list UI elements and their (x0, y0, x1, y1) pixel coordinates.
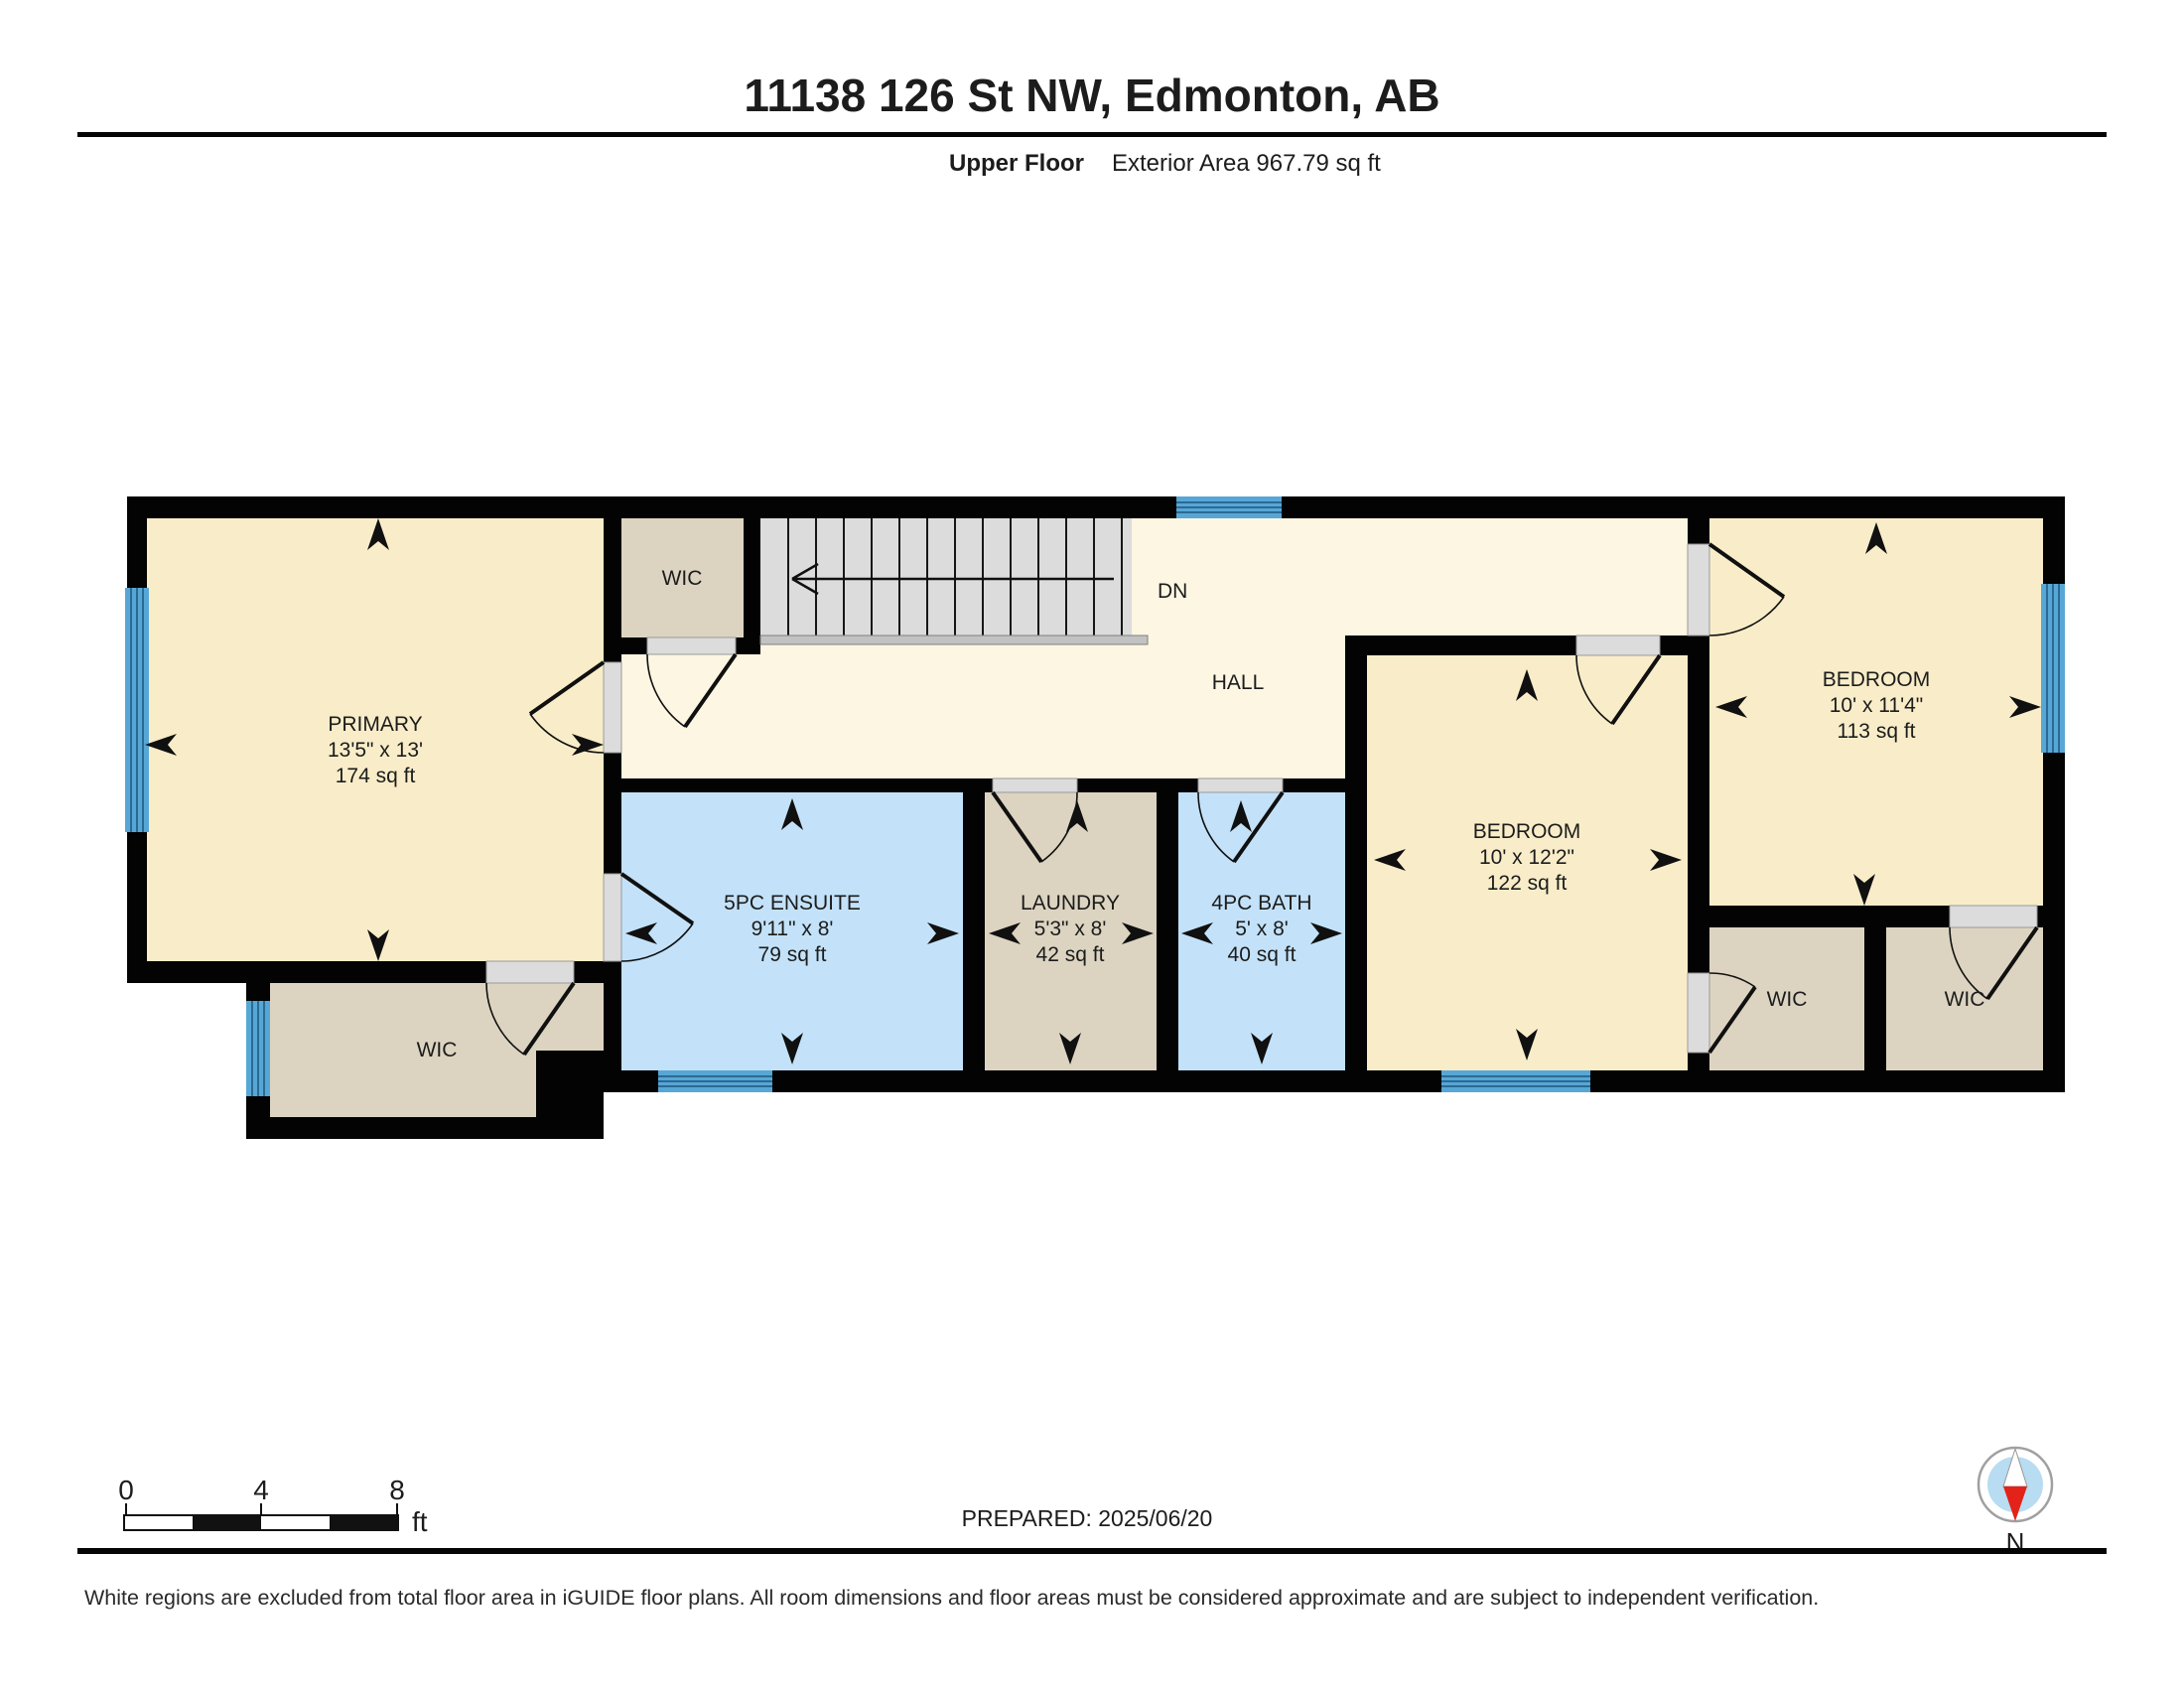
room-wic-right-b-label: WIC (1945, 988, 1985, 1011)
scale-bar-segment (330, 1515, 398, 1530)
window-wic-left (246, 1001, 270, 1096)
room-wic-top-label: WIC (662, 567, 703, 590)
window-bedroom-right (2041, 584, 2065, 753)
stairs-dn-label: DN (1158, 580, 1187, 603)
room-wic-left-label: WIC (417, 1039, 458, 1061)
room-area: 79 sq ft (758, 943, 827, 966)
room-dims: 5'3" x 8' (1034, 917, 1107, 940)
room-bedroom-mid-label: BEDROOM 10' x 12'2" 122 sq ft (1473, 820, 1581, 895)
room-name: BEDROOM (1473, 820, 1581, 843)
prepared-date: PREPARED: 2025/06/20 (962, 1505, 1213, 1531)
window-primary-left (125, 588, 149, 832)
floor-plan-page: 11138 126 St NW, Edmonton, AB Upper Floo… (0, 0, 2184, 1688)
exterior-area-label: Exterior Area 967.79 sq ft (1112, 150, 1381, 177)
exterior-notch-left (127, 983, 246, 1139)
room-primary-label: PRIMARY 13'5" x 13' 174 sq ft (328, 713, 423, 787)
room-area: 113 sq ft (1838, 720, 1916, 743)
room-wic-right-a-label: WIC (1767, 988, 1808, 1011)
room-area: 40 sq ft (1228, 943, 1297, 966)
window-ensuite-bottom (658, 1070, 772, 1092)
header: 11138 126 St NW, Edmonton, AB Upper Floo… (77, 70, 2107, 177)
room-dims: 10' x 11'4" (1830, 694, 1923, 717)
room-name: 4PC BATH (1211, 892, 1311, 915)
scale-bar: 0 4 8 ft (118, 1475, 428, 1537)
stairs-edge-bar (760, 635, 1148, 644)
header-divider (77, 132, 2107, 137)
room-dims: 10' x 12'2" (1479, 846, 1574, 869)
room-name: BEDROOM (1823, 668, 1931, 691)
wall-wic-top-stairs (744, 518, 760, 643)
wall-wic-right-divider (1864, 927, 1886, 1070)
window-hall-top (1176, 496, 1282, 518)
room-area: 174 sq ft (336, 765, 416, 787)
disclaimer-text: White regions are excluded from total fl… (84, 1586, 1819, 1610)
room-dims: 13'5" x 13' (328, 739, 423, 762)
room-name: LAUNDRY (1021, 892, 1120, 915)
room-area: 42 sq ft (1036, 943, 1105, 966)
stairs: DN (760, 518, 1187, 644)
scale-tick-4: 4 (253, 1475, 269, 1505)
compass: N (1979, 1448, 2052, 1557)
scale-tick-0: 0 (118, 1475, 134, 1505)
scale-tick-8: 8 (389, 1475, 405, 1505)
room-dims: 9'11" x 8' (751, 917, 834, 940)
scale-unit-label: ft (412, 1506, 428, 1537)
room-hall-label: HALL (1212, 671, 1265, 694)
scale-bar-segment (193, 1515, 261, 1530)
scale-ticks (126, 1503, 397, 1515)
footer-divider (77, 1548, 2107, 1554)
room-area: 122 sq ft (1487, 872, 1568, 895)
window-bedroom-mid-bottom (1441, 1070, 1590, 1092)
exterior-notch-bump (604, 1092, 621, 1139)
floor-label: Upper Floor (949, 150, 1084, 177)
room-bedroom-right-label: BEDROOM 10' x 11'4" 113 sq ft (1823, 668, 1931, 743)
wall-bedroom-mid-west (1345, 635, 1367, 1070)
page-title: 11138 126 St NW, Edmonton, AB (744, 70, 1439, 121)
room-dims: 5' x 8' (1235, 917, 1289, 940)
room-name: 5PC ENSUITE (724, 892, 861, 915)
room-name: PRIMARY (328, 713, 422, 736)
